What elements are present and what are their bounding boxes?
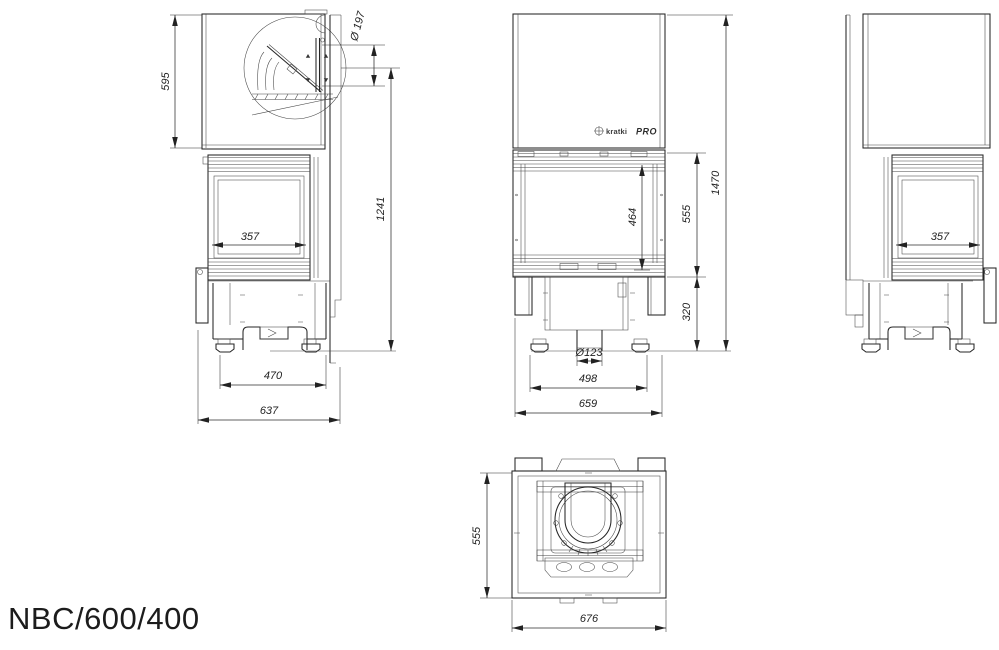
- dim-height-to-flue-label: 1241: [375, 197, 387, 221]
- base-recess: [243, 327, 307, 350]
- rear-spacer-channel: [846, 15, 863, 327]
- leg: [304, 339, 316, 344]
- bolt: [559, 494, 564, 499]
- bolt: [554, 521, 559, 526]
- dim-total-height: 1470: [667, 15, 733, 351]
- right-view-base: [862, 281, 974, 352]
- dim-width-label: 659: [579, 398, 597, 410]
- damper-fin: [274, 62, 279, 90]
- dim-firebox-height-label: 555: [681, 204, 693, 223]
- leg: [958, 339, 970, 344]
- door-latch: [631, 152, 647, 157]
- dim-total-height-label: 1470: [710, 170, 722, 195]
- technical-drawing: 595 Ø 197 1241 357 470 637: [0, 0, 999, 650]
- dim-top-depth-label: 555: [471, 526, 483, 545]
- dim-depth-label: 637: [260, 405, 279, 417]
- dim-glass-height-label: 464: [627, 208, 639, 226]
- door-handle-pin: [985, 270, 990, 275]
- side-panel: [648, 277, 665, 315]
- dim-feet-spacing-front-label: 498: [579, 373, 598, 385]
- mount-bracket: [638, 458, 665, 471]
- dim-base-height: 320: [681, 277, 697, 351]
- front-sill: [984, 268, 996, 323]
- door-hinge-pin: [198, 270, 203, 275]
- dim-glass-width-left: 357: [212, 231, 306, 245]
- dim-inlet-diameter: Ø123: [575, 347, 604, 366]
- rear-panel: [846, 280, 863, 315]
- drawing-sheet: 595 Ø 197 1241 357 470 637: [0, 0, 999, 650]
- dim-glass-width-right: 357: [896, 231, 980, 245]
- rear-spacer-channel: [330, 15, 341, 363]
- damper-fin: [258, 52, 264, 90]
- leg: [634, 339, 647, 344]
- left-side-view: 595 Ø 197 1241 357 470 637: [160, 9, 400, 424]
- dim-width: 659: [515, 318, 662, 417]
- damper-detail-circle: [244, 17, 346, 119]
- top-view: 555 676: [471, 458, 666, 632]
- dim-glass-width-right-label: 357: [931, 231, 950, 243]
- door-hinge: [203, 157, 208, 164]
- dim-glass-height: 464: [627, 165, 650, 270]
- brand-name: kratki: [606, 127, 627, 136]
- dim-flue-diameter-label: Ø 197: [348, 9, 368, 43]
- foot: [956, 344, 974, 352]
- dim-inlet-diameter-label: Ø123: [575, 347, 604, 359]
- brand-logo: kratki PRO: [594, 126, 657, 137]
- front-view-base: [515, 277, 731, 352]
- glass-pane: [898, 176, 978, 258]
- dim-height-to-flue: 1241: [341, 68, 400, 351]
- bottom-tab: [603, 598, 617, 603]
- door-latch: [518, 152, 534, 157]
- bolt: [618, 521, 623, 526]
- front-view: kratki PRO: [513, 14, 733, 417]
- dim-top-width: 676: [512, 600, 666, 632]
- leg: [864, 339, 876, 344]
- bolt: [613, 494, 618, 499]
- dim-hood-height-label: 595: [160, 71, 172, 90]
- dim-feet-spacing-left: 470: [220, 355, 326, 389]
- center-bracket: [556, 459, 620, 471]
- ash-box: [545, 277, 628, 330]
- collar-spokes: [569, 546, 607, 556]
- dim-hood-height: 595: [160, 15, 202, 148]
- brand-suffix: PRO: [636, 127, 657, 137]
- model-title: NBC/600/400: [8, 601, 200, 636]
- dim-glass-width-left-label: 357: [241, 231, 260, 243]
- damper-fin: [266, 58, 272, 90]
- base-recess: [888, 327, 950, 350]
- dim-feet-spacing-left-label: 470: [264, 370, 283, 382]
- dim-top-width-label: 676: [580, 613, 599, 625]
- air-duct: [905, 327, 933, 339]
- bottom-tab: [560, 598, 574, 603]
- left-view-base: [208, 281, 396, 352]
- hood-top-tab: [305, 10, 327, 14]
- front-sill: [196, 268, 208, 323]
- leg: [218, 339, 230, 344]
- dim-flue-diameter: Ø 197: [322, 9, 385, 86]
- mount-bracket: [515, 458, 542, 471]
- leg: [533, 339, 546, 344]
- foot: [216, 344, 234, 352]
- glass-pane: [214, 176, 304, 258]
- side-panel: [515, 277, 532, 315]
- air-duct: [260, 327, 288, 339]
- dim-base-height-label: 320: [681, 302, 693, 321]
- dim-firebox-height: 555: [667, 153, 706, 277]
- dim-feet-spacing-front: 498: [530, 355, 647, 392]
- foot: [862, 344, 880, 352]
- right-side-view: 357: [846, 14, 996, 352]
- dim-top-depth: 555: [471, 473, 512, 598]
